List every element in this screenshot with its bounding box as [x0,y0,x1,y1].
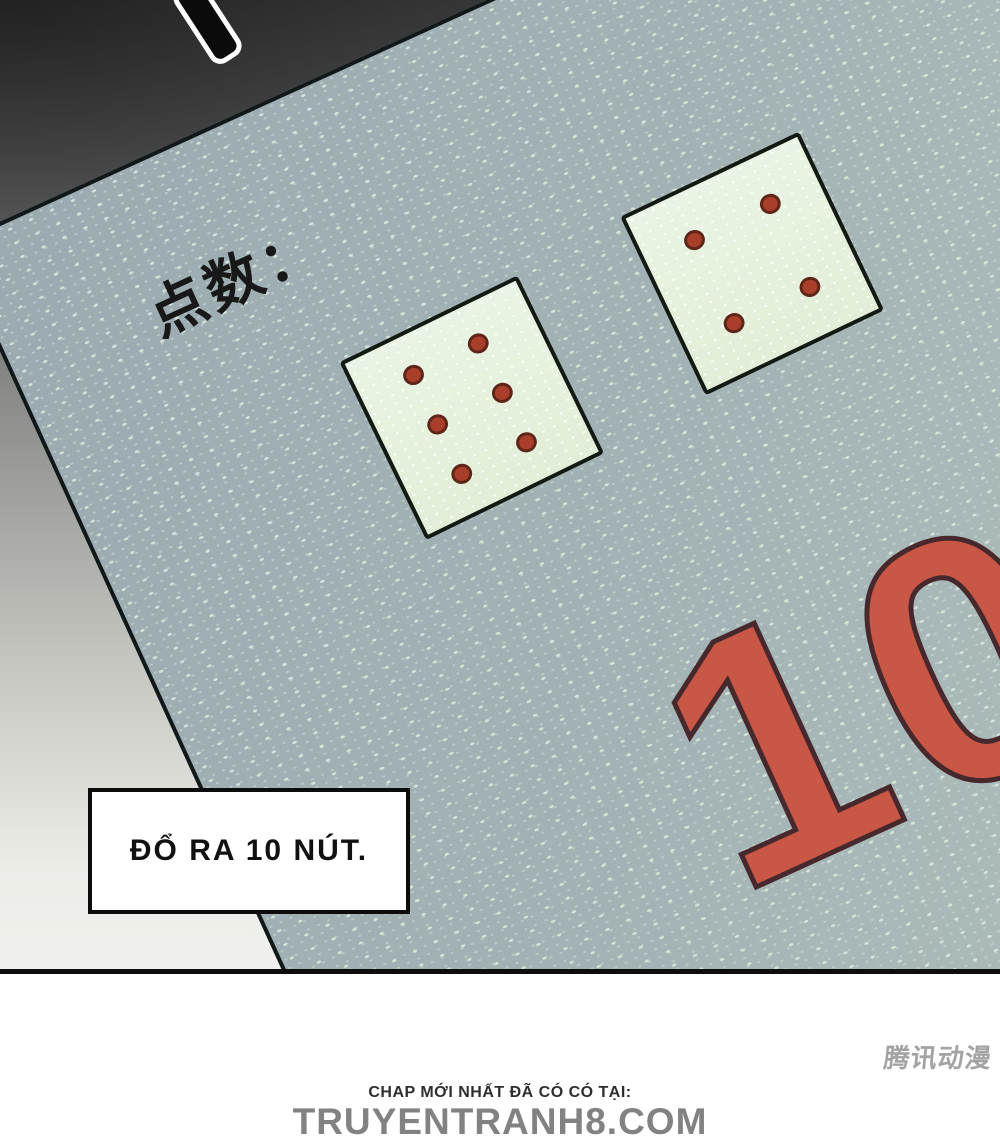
die-pip [681,227,709,254]
die-pip [448,460,476,487]
die-pip [489,379,517,406]
die-six [339,275,604,540]
footer-site-name: TRUYENTRANH8.COM [0,1101,1000,1143]
die-pip [796,273,824,300]
rolled-total-number: 10 [614,455,1000,947]
die-pip [465,330,493,357]
footer-promo-text: CHAP MỚI NHẤT ĐÃ CÓ CÓ TẠI: [0,1084,1000,1102]
comic-panel: 点数： 10 ĐỔ RA 10 NÚT. [0,0,1000,974]
die-pip [720,309,748,336]
speech-text: ĐỔ RA 10 NÚT. [130,834,368,868]
die-pip [400,361,428,388]
die-pip [424,411,452,438]
die-pip [757,191,785,218]
stick-icon [169,0,246,68]
speech-box: ĐỔ RA 10 NÚT. [88,788,410,914]
die-four [620,132,884,396]
die-pip [513,429,541,456]
tencent-comics-watermark: 腾讯动漫 [882,1038,994,1075]
score-label: 点数： [133,202,334,353]
